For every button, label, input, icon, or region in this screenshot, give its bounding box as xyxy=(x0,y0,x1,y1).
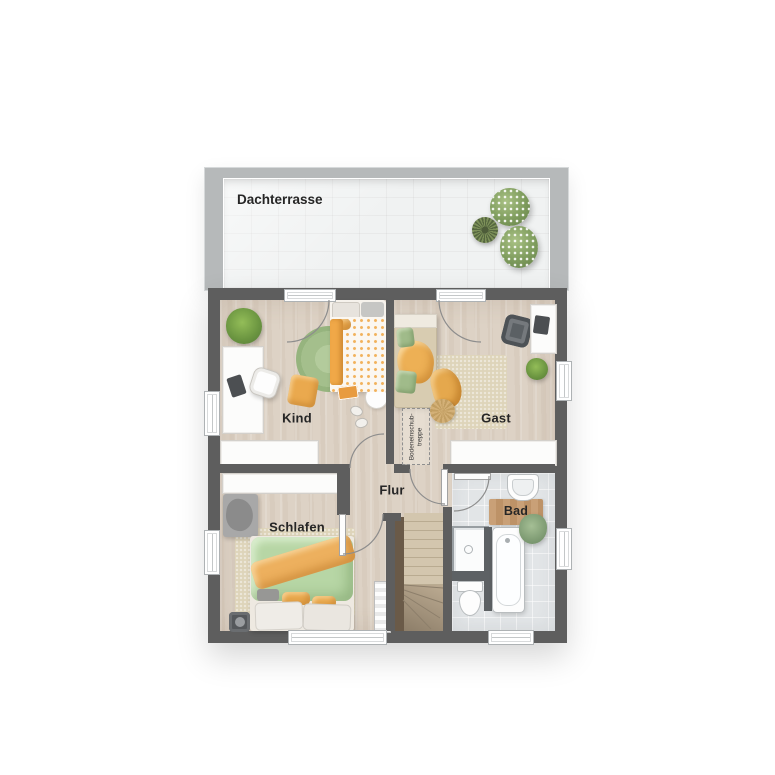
gast-sideboard xyxy=(450,440,557,466)
wall-bad-west xyxy=(443,507,452,631)
bathtub-basin xyxy=(496,534,521,606)
gast-green-pillow xyxy=(396,327,415,348)
kind-bed-pillow xyxy=(361,302,384,317)
staircase-treads xyxy=(404,513,443,586)
flur-label: Flur xyxy=(379,483,404,498)
speaker-cone-icon xyxy=(235,617,245,627)
attic-hatch: Bodeneinschub- treppe xyxy=(402,408,430,465)
gast-pouf xyxy=(430,399,455,423)
gast-laptop xyxy=(533,315,550,335)
window-bad-east xyxy=(556,528,572,570)
wall-schlafen-stair xyxy=(386,513,395,631)
schlafen-label: Schlafen xyxy=(269,520,325,535)
window-bad-south xyxy=(488,630,534,645)
bad-label: Bad xyxy=(504,504,528,518)
schlafen-door-leaf xyxy=(339,514,346,556)
window-schlafen-south xyxy=(288,630,387,645)
terrace-door-kind xyxy=(284,289,336,302)
bath-vanity-wall xyxy=(452,571,485,581)
schlafen-gray-pillow xyxy=(257,589,279,601)
terrace-door-gast xyxy=(436,289,486,302)
staircase-winders xyxy=(404,585,443,631)
attic-hatch-label: Bodeneinschub- treppe xyxy=(408,413,424,460)
wall-kind-gast xyxy=(386,300,394,464)
window-kind-west xyxy=(204,391,220,436)
flower-bush-icon xyxy=(500,226,538,268)
floor-plan: Dachterrasse xyxy=(0,0,775,775)
schlafen-pillow xyxy=(303,603,352,632)
gast-bed-headboard xyxy=(394,314,437,328)
gast-plant-icon xyxy=(526,358,548,380)
bathtub-ledge xyxy=(484,527,492,611)
schlafen-pillow xyxy=(255,601,304,631)
spiky-plant-icon xyxy=(472,217,498,243)
wall-kind-south xyxy=(220,464,350,473)
shower-drain-icon xyxy=(464,545,473,554)
staircase-railing xyxy=(394,517,404,631)
kind-label: Kind xyxy=(282,411,312,426)
window-schlafen-west xyxy=(204,530,220,575)
wall-gast-south-b xyxy=(443,464,555,473)
bad-door-leaf xyxy=(454,473,491,480)
kind-bed-blanket xyxy=(330,319,343,385)
terrace-label: Dachterrasse xyxy=(237,192,323,207)
wall-gast-south-a xyxy=(394,464,410,473)
kind-floor-pillow xyxy=(287,374,320,408)
gast-door-leaf xyxy=(441,469,448,506)
gast-label: Gast xyxy=(481,411,511,426)
bathtub-faucet-icon xyxy=(505,538,510,543)
schlafen-wardrobe xyxy=(222,473,340,494)
flower-bush-icon xyxy=(490,188,530,226)
gift-box xyxy=(337,385,359,401)
kind-plant-icon xyxy=(226,308,262,344)
gast-green-pillow xyxy=(395,370,417,394)
window-gast-east xyxy=(556,361,572,401)
wall-flur-west xyxy=(337,464,350,515)
kind-wardrobe xyxy=(220,440,319,466)
